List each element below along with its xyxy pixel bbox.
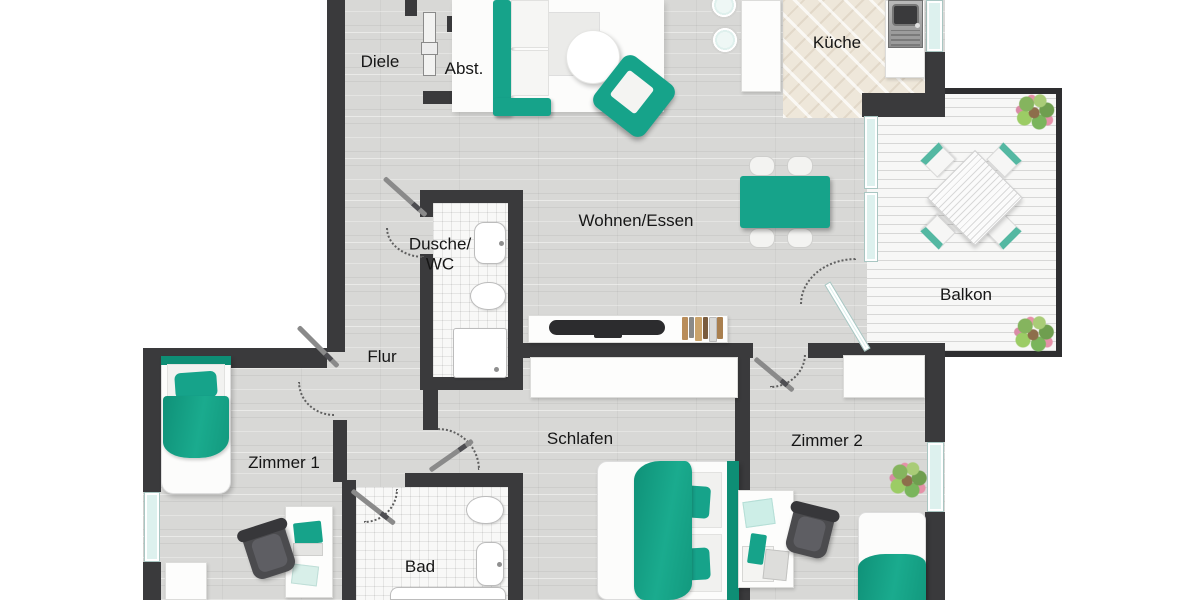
nightstand-zimmer1 [165, 562, 207, 600]
dining-table [740, 176, 830, 228]
sofa-cushion-2 [511, 50, 549, 96]
wall [143, 562, 161, 600]
kitchen-island [741, 0, 781, 92]
blanket-zimmer2 [858, 554, 926, 600]
sink-faucet [915, 23, 920, 28]
window-living-balcony-upper [864, 116, 878, 189]
laptop-screen-zimmer1 [293, 521, 323, 546]
wall [420, 190, 523, 203]
wall [862, 93, 945, 117]
washbasin-tap-bad [497, 562, 502, 567]
wardrobe-schlafen [530, 357, 738, 398]
tv-stand [594, 333, 622, 338]
label-dusche-wc: Dusche/ WC [409, 234, 471, 273]
dining-chair [749, 156, 775, 176]
dining-chair [749, 228, 775, 248]
toilet-dusche [470, 282, 506, 310]
wall [423, 390, 438, 430]
wall [925, 358, 945, 442]
wall [342, 480, 356, 600]
sofa-cushion-1 [511, 0, 549, 48]
window-kitchen [926, 0, 943, 52]
balcony-railing-right [1056, 88, 1062, 357]
label-schlafen: Schlafen [547, 429, 613, 449]
wall [333, 420, 347, 482]
floor-plan: Diele Abst. Küche Wohnen/Essen Dusche/ W… [0, 0, 1200, 600]
laptop-keyboard-zimmer1 [293, 543, 323, 556]
label-kueche: Küche [813, 33, 861, 53]
wall [523, 343, 753, 358]
toilet-bad [466, 496, 504, 524]
dining-chair [787, 228, 813, 248]
wall [143, 348, 161, 492]
wall [405, 0, 417, 16]
label-zimmer1: Zimmer 1 [248, 453, 320, 473]
wall [925, 57, 945, 93]
paper-zimmer1 [291, 563, 319, 586]
plant-zimmer2 [888, 460, 928, 500]
wall [405, 473, 523, 487]
washbasin-tap-dusche [499, 241, 504, 246]
wall [420, 377, 521, 390]
books [682, 317, 724, 341]
label-diele: Diele [361, 52, 400, 72]
paper-teal-zimmer2 [742, 498, 775, 528]
window-zimmer1 [144, 492, 160, 562]
wall [327, 0, 345, 352]
window-living-balcony-lower [864, 192, 878, 262]
shower-drain [494, 367, 499, 372]
dining-chair [787, 156, 813, 176]
balcony-plant-bottom [1012, 314, 1056, 354]
label-bad: Bad [405, 557, 435, 577]
blanket-zimmer1 [163, 396, 229, 458]
shower [453, 328, 507, 378]
plate [711, 26, 739, 54]
window-zimmer2 [927, 442, 944, 512]
wall [508, 487, 523, 600]
label-wohnen-essen: Wohnen/Essen [579, 211, 694, 231]
outside-area-top-left [0, 0, 327, 348]
cabinet-zimmer2 [843, 355, 925, 398]
corner-sofa-back-horizontal [493, 98, 551, 116]
bathtub [390, 587, 506, 600]
laptop-zimmer2 [762, 549, 789, 581]
label-flur: Flur [367, 347, 396, 367]
label-zimmer2: Zimmer 2 [791, 431, 863, 451]
kitchen-sink-unit [888, 0, 923, 48]
label-abst: Abst. [445, 59, 484, 79]
sink-drainer [891, 30, 920, 46]
outside-area-left [0, 348, 143, 600]
balcony-plant-top [1014, 92, 1056, 132]
wall [508, 203, 523, 390]
wall [925, 512, 945, 600]
label-balkon: Balkon [940, 285, 992, 305]
blanket-schlafen [634, 461, 692, 600]
closet-door-handle [421, 42, 438, 55]
